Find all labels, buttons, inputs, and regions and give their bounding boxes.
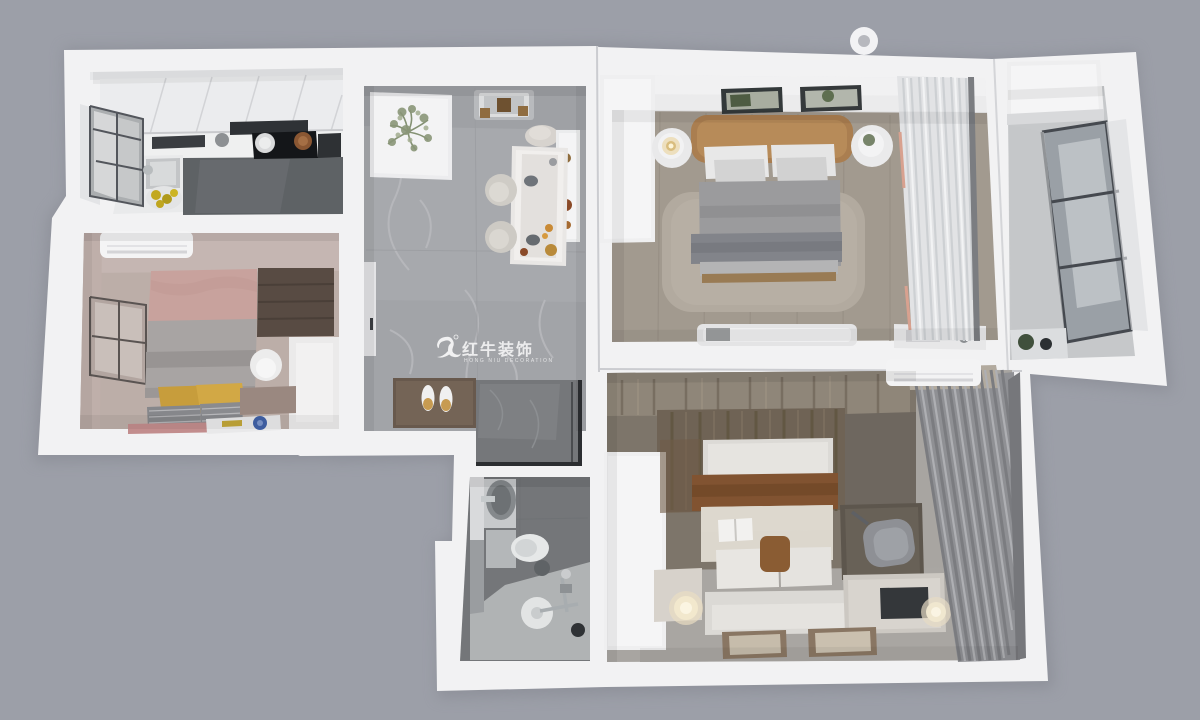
svg-text:HONG NIU DECORATION: HONG NIU DECORATION: [464, 358, 554, 364]
svg-text:红牛装饰: 红牛装饰: [462, 340, 534, 359]
